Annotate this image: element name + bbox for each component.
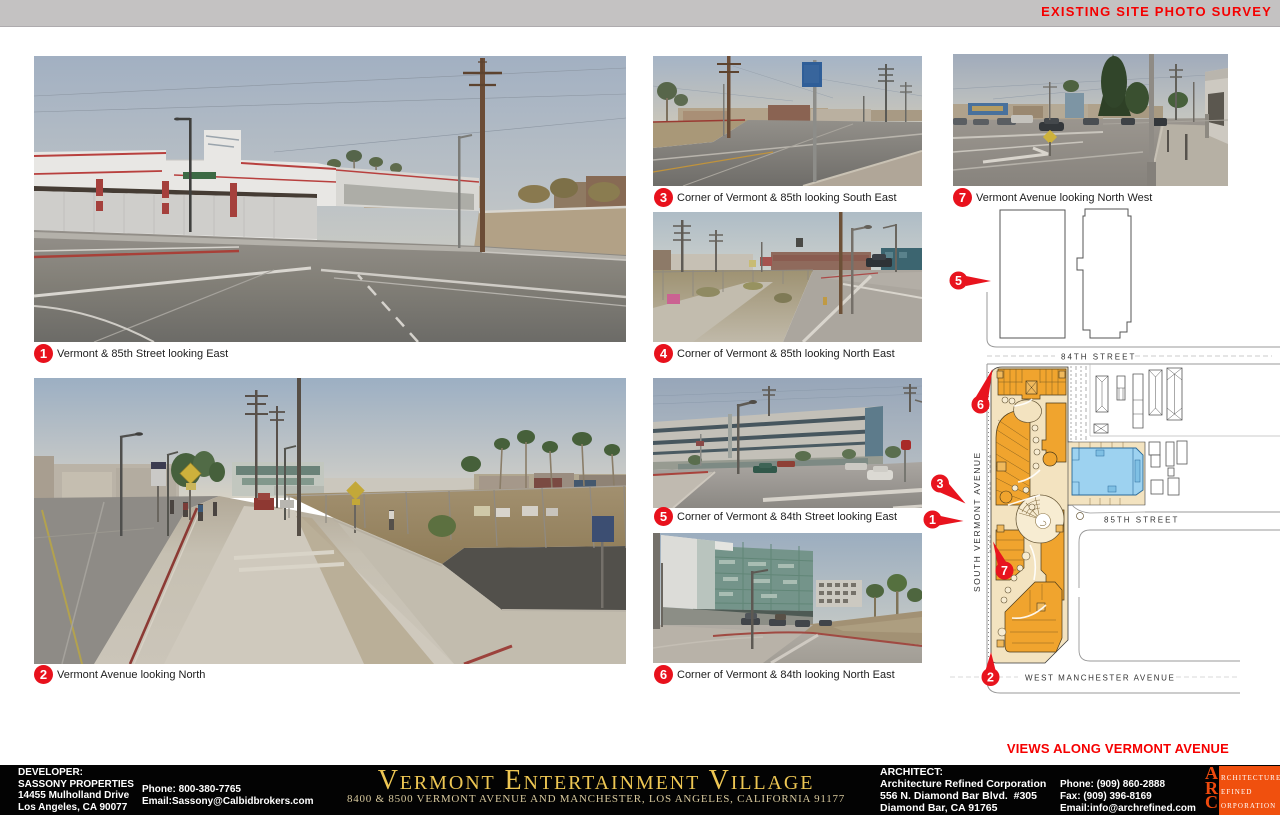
svg-text:84TH STREET: 84TH STREET — [1061, 353, 1136, 362]
svg-text:85TH STREET: 85TH STREET — [1104, 516, 1179, 525]
svg-text:SOUTH VERMONT AVENUE: SOUTH VERMONT AVENUE — [972, 451, 982, 592]
svg-text:3: 3 — [937, 477, 944, 491]
svg-text:5: 5 — [955, 274, 962, 288]
svg-text:1: 1 — [929, 513, 936, 527]
svg-text:2: 2 — [987, 671, 994, 685]
svg-text:WEST MANCHESTER AVENUE: WEST MANCHESTER AVENUE — [1025, 674, 1175, 683]
svg-text:7: 7 — [1001, 564, 1008, 578]
svg-text:6: 6 — [977, 398, 984, 412]
